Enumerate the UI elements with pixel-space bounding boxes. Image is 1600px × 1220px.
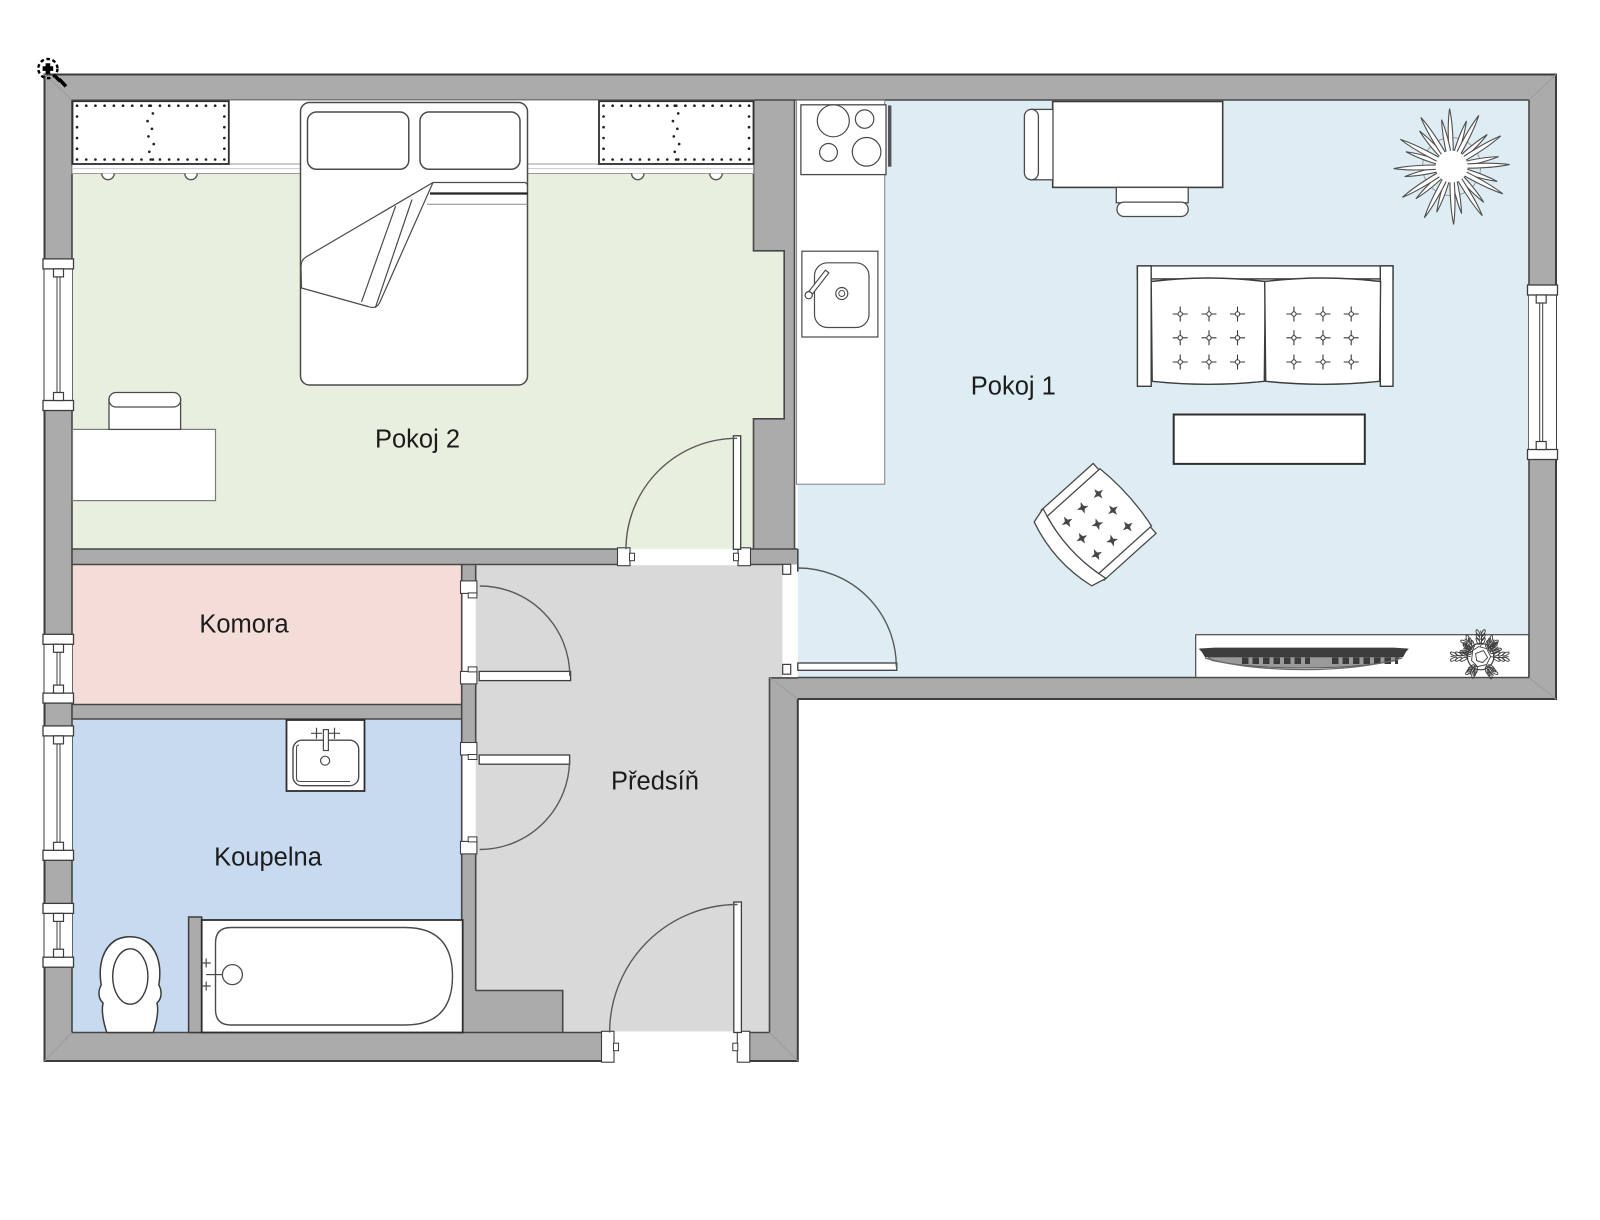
svg-text:Předsíň: Předsíň [611,768,699,796]
svg-text:Koupelna: Koupelna [214,843,323,871]
svg-text:Komora: Komora [199,611,289,639]
svg-text:Pokoj 2: Pokoj 2 [375,426,460,454]
svg-text:Pokoj 1: Pokoj 1 [971,373,1056,401]
